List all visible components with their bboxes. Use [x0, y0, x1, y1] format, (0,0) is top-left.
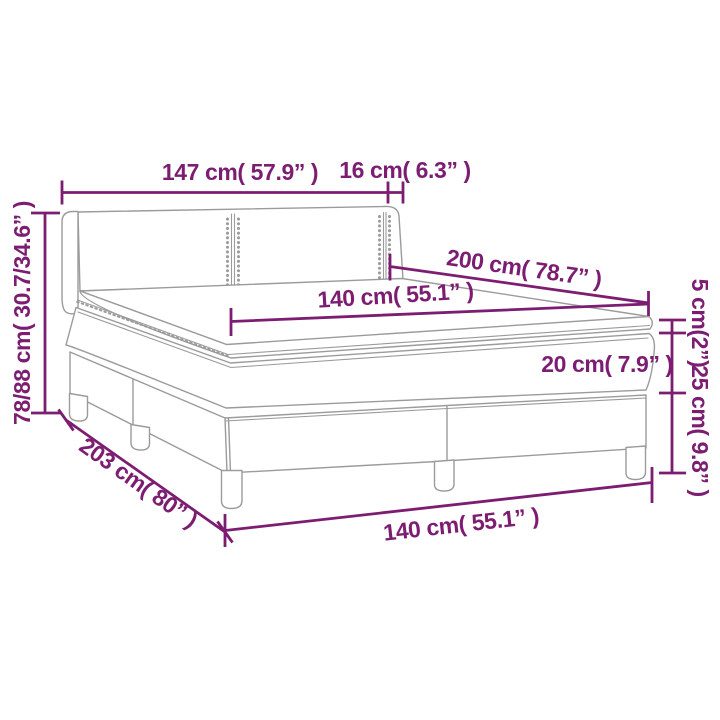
bed-leg: [435, 460, 455, 491]
headboard-panel: [78, 206, 403, 291]
bed-leg: [131, 425, 150, 451]
dimension-diagram: 147 cm( 57.9” ) 16 cm( 6.3” ) 78/88 cm( …: [0, 0, 720, 720]
label-wing-depth: 16 cm( 6.3” ): [339, 157, 471, 183]
label-total-height: 78/88 cm( 30.7/34.6” ): [9, 201, 35, 425]
label-topper-height: 5 cm(2”): [687, 279, 713, 368]
bed-leg: [70, 394, 88, 422]
label-base-height: 25 cm( 9.8” ): [687, 365, 713, 497]
label-headboard-width: 147 cm( 57.9” ): [162, 159, 318, 185]
headboard-left-wing: [62, 212, 78, 314]
bed-leg: [222, 471, 243, 509]
bed-leg: [626, 446, 646, 480]
label-mattress-height: 20 cm( 7.9” ): [541, 351, 673, 377]
diagram-canvas: 147 cm( 57.9” ) 16 cm( 6.3” ) 78/88 cm( …: [0, 0, 720, 720]
dimension-line-right-heights: [659, 320, 686, 473]
dimension-line-total-height: [31, 213, 60, 413]
